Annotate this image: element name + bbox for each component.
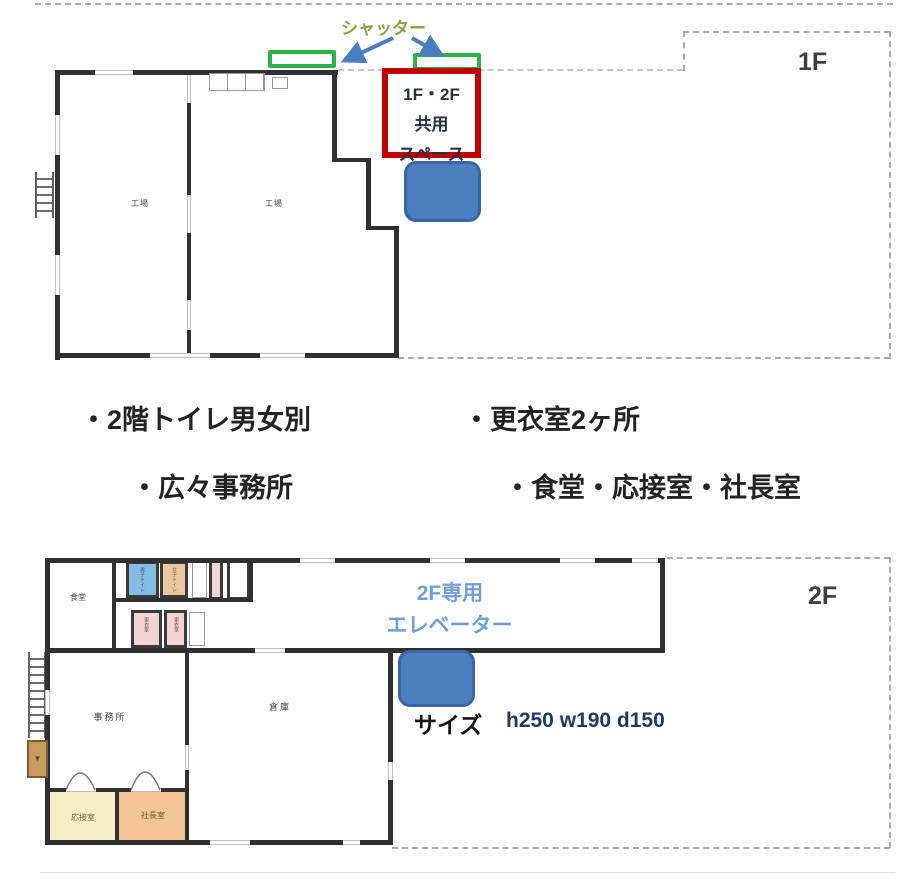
floor-plan-page: 1F 工場 工場 シャッター 1F・2F 共用 スペース ・2階トイレ男女別 ・… [0, 0, 900, 879]
site-boundary [889, 557, 891, 848]
elevator-caption-line2: エレベーター [372, 609, 527, 639]
wall [55, 70, 60, 360]
size-value: h250 w190 d150 [506, 709, 665, 733]
site-boundary [683, 31, 685, 71]
room-label-storage: 倉庫 [250, 700, 310, 713]
wall [249, 558, 253, 602]
stairs [35, 172, 54, 218]
door-gap [131, 788, 161, 792]
door-gap [187, 75, 191, 103]
window-gap [632, 558, 658, 563]
shared-space-line2: 共用 [388, 110, 475, 140]
wall [112, 598, 252, 602]
fixture [192, 562, 207, 598]
door-gap [255, 648, 285, 653]
size-label: サイズ [414, 706, 482, 740]
shared-space-box: 1F・2F 共用 スペース [382, 68, 481, 158]
room-label-reception: 応接室 [56, 812, 110, 823]
room-label-toilet-men: 男子トイレ [139, 567, 146, 592]
exterior-landing: ▼ [27, 740, 48, 778]
feature-rooms: ・食堂・応接室・社長室 [504, 466, 801, 505]
room-label-president: 社長室 [126, 810, 180, 821]
window-gap [95, 70, 133, 75]
fixture [209, 73, 265, 91]
room-utility-small [209, 559, 223, 600]
site-boundary [889, 31, 891, 359]
room-label-locker1: 更衣室 [143, 617, 150, 632]
window-gap [343, 840, 360, 845]
window-gap [150, 353, 210, 358]
room-label-dining: 食堂 [58, 592, 98, 603]
door-gap [388, 762, 393, 780]
door-gap [66, 788, 96, 792]
door-gap [187, 195, 191, 233]
stairs [28, 652, 46, 738]
shared-space-line1: 1F・2F [388, 80, 475, 110]
image-edge-line [40, 872, 895, 873]
shutter-caption: シャッター [341, 14, 426, 39]
room-toilet-women: 女子トイレ [160, 561, 188, 598]
room-toilet-men: 男子トイレ [126, 561, 159, 598]
window-gap [260, 353, 305, 358]
floor1-tag: 1F [798, 48, 827, 77]
wall [366, 158, 371, 230]
fixture [272, 77, 288, 89]
wall [332, 158, 370, 162]
fixture [189, 612, 205, 646]
door-gap [185, 745, 189, 770]
room-label-office: 事務所 [80, 710, 140, 723]
wall [115, 788, 119, 845]
site-boundary [683, 31, 890, 33]
wall [45, 648, 665, 653]
shutter-arrow-left [348, 38, 393, 59]
window-gap [210, 840, 250, 845]
elevator-marker-2f [398, 650, 475, 707]
wall [332, 70, 337, 162]
shutter-arrow-right [412, 38, 438, 53]
wall [388, 648, 393, 845]
door-gap [187, 300, 191, 330]
window-gap [45, 690, 50, 715]
feature-office: ・広々事務所 [131, 466, 293, 505]
site-boundary [398, 357, 890, 359]
site-boundary [667, 557, 890, 559]
wall [55, 353, 399, 358]
window-gap [300, 558, 335, 563]
room-utility-small [227, 559, 250, 600]
wall [660, 558, 665, 653]
window-gap [430, 558, 465, 563]
feature-toilets: ・2階トイレ男女別 [80, 398, 311, 437]
room-label-toilet-women: 女子トイレ [171, 567, 178, 592]
elevator-caption-line1: 2F専用 [385, 577, 515, 607]
floor2-tag: 2F [808, 582, 837, 611]
site-boundary [35, 3, 893, 5]
wall [394, 226, 399, 358]
room-locker-1: 更衣室 [131, 610, 162, 648]
wall [112, 558, 116, 652]
shutter-marker-left [268, 50, 336, 68]
room-label-factory-left: 工場 [120, 198, 160, 209]
room-label-locker2: 更衣室 [173, 617, 180, 632]
room-label-factory-right: 工場 [252, 198, 296, 209]
feature-lockers: ・更衣室2ヶ所 [463, 398, 640, 437]
window-gap [560, 558, 595, 563]
window-gap [55, 255, 60, 295]
window-gap [55, 115, 60, 155]
elevator-marker-1f [404, 161, 481, 222]
site-boundary [392, 847, 890, 849]
room-locker-2: 更衣室 [164, 610, 187, 648]
